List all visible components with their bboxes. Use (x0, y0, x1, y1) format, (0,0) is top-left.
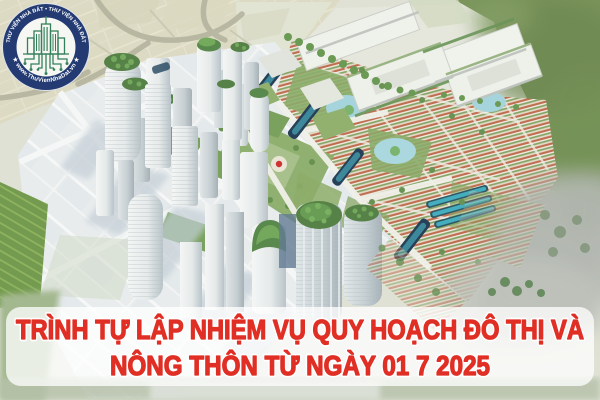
svg-text:NÔNG THÔN TỪ NGÀY 01 7 2025: NÔNG THÔN TỪ NGÀY 01 7 2025 (110, 349, 490, 381)
svg-text:TRÌNH TỰ LẬP NHIỆM VỤ QUY HOẠC: TRÌNH TỰ LẬP NHIỆM VỤ QUY HOẠCH ĐÔ THỊ V… (16, 313, 584, 345)
